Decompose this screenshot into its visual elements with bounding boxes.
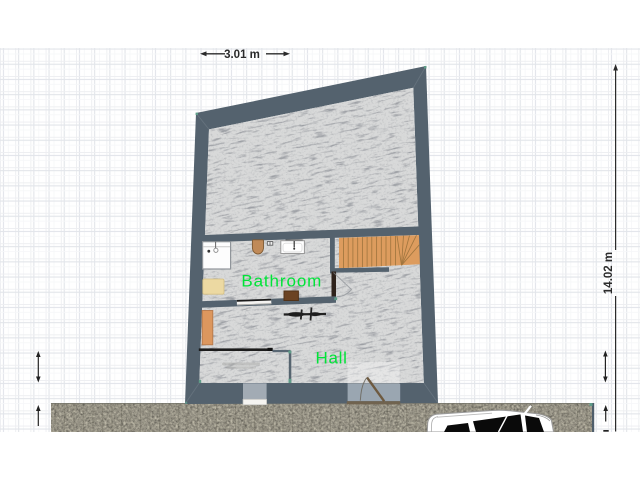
svg-text:Bathroom: Bathroom [241,272,322,291]
svg-text:14.02 m: 14.02 m [603,252,615,294]
svg-text:3.01 m: 3.01 m [224,49,260,61]
svg-text:Hall: Hall [316,349,348,368]
